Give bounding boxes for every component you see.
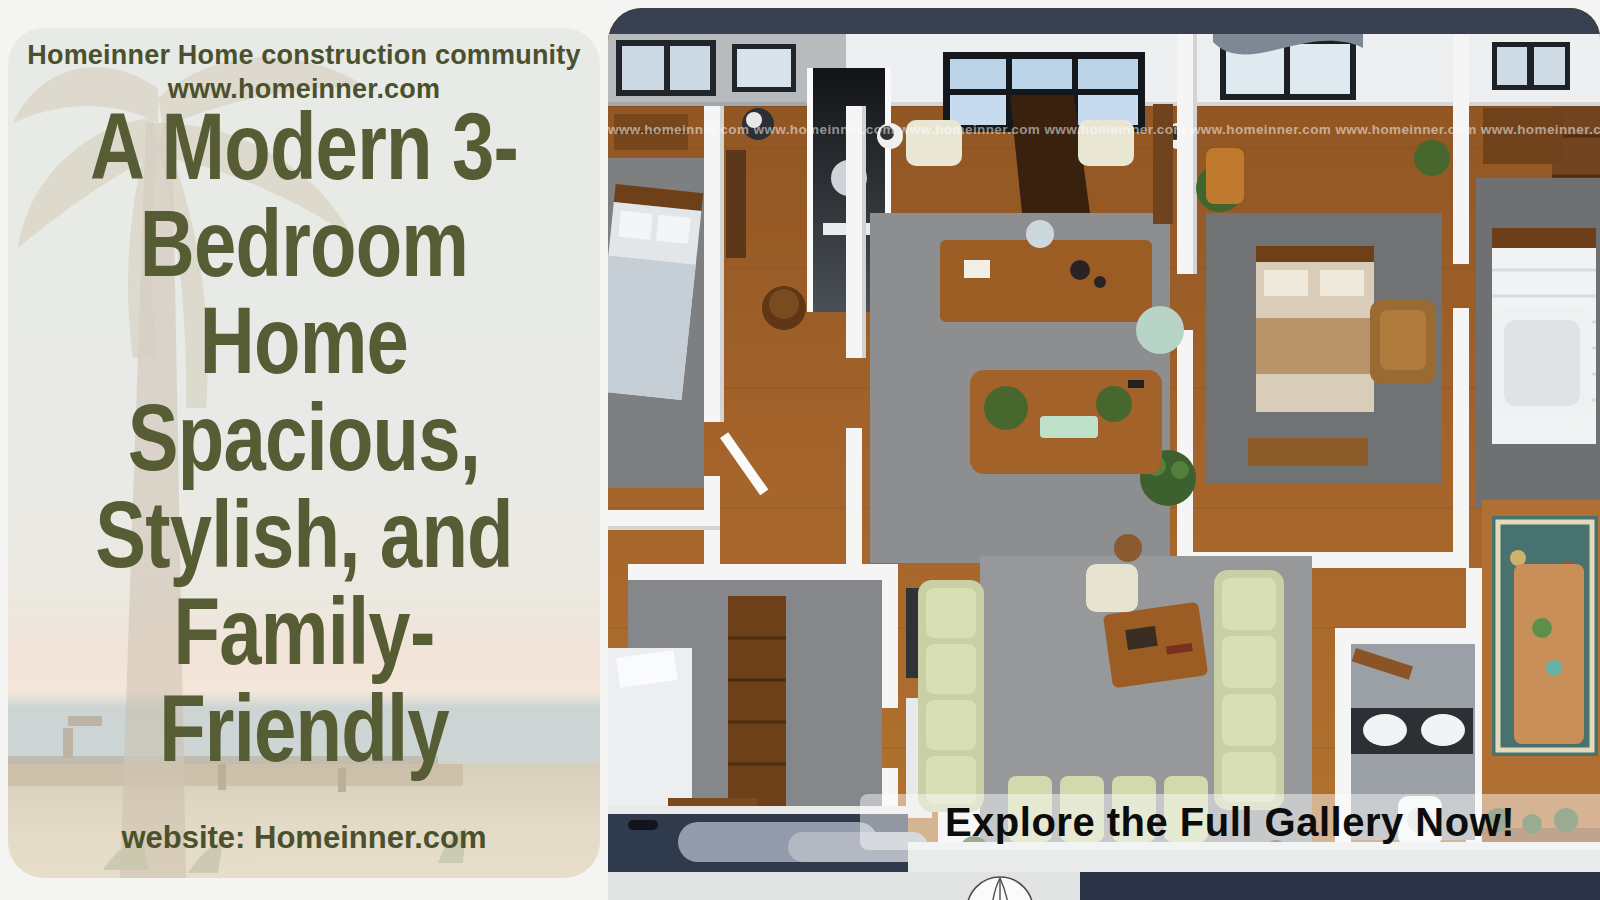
jade-stool	[1136, 306, 1184, 354]
desk	[940, 240, 1152, 322]
sail-logo-icon	[950, 872, 1050, 900]
headline-line-3: Home	[64, 292, 544, 389]
headline-line-2: Bedroom	[64, 195, 544, 292]
patio	[1482, 308, 1600, 868]
sink	[1363, 714, 1407, 746]
left-promo-panel: Homeinner Home construction community ww…	[8, 28, 600, 878]
headline-line-1: A Modern 3-	[64, 98, 544, 195]
bedroom-skylight	[1492, 42, 1570, 90]
page: { "brand": { "header_line1": "Homeinner …	[0, 0, 1600, 900]
cta-banner[interactable]: Explore the Full Gallery Now!	[860, 794, 1600, 850]
headline-line-4: Spacious,	[64, 389, 544, 486]
vase	[1026, 220, 1054, 248]
sofa	[1214, 570, 1284, 810]
bench	[1248, 438, 1368, 466]
plant	[1096, 386, 1132, 422]
plant	[984, 386, 1028, 430]
curtain-window	[1213, 34, 1363, 100]
bookshelf	[728, 596, 786, 826]
sofa	[918, 580, 984, 812]
plant	[1414, 140, 1450, 176]
desk-chair	[1086, 564, 1138, 612]
website-footer: website: Homeinner.com	[8, 820, 600, 856]
headline-line-5: Stylish, and	[64, 486, 544, 583]
chair	[1206, 148, 1244, 204]
vase	[1114, 534, 1142, 562]
cta-text[interactable]: Explore the Full Gallery Now!	[945, 800, 1515, 845]
tray	[1040, 416, 1098, 438]
headline-line-7: Friendly	[64, 680, 544, 777]
top-navy-bar	[608, 8, 1600, 34]
floor-plan-image: www.homeinner.com www.homeinner.com www.…	[608, 8, 1600, 900]
patio-table	[1514, 564, 1584, 744]
console	[726, 150, 746, 258]
brand-header-line1: Homeinner Home construction community	[8, 38, 600, 72]
sink	[1421, 714, 1465, 746]
work-desk	[1103, 602, 1208, 689]
watermark: www.homeinner.com www.homeinner.com www.…	[608, 120, 1600, 140]
headline-line-6: Family-	[64, 583, 544, 680]
floor-plan-render	[608, 8, 1600, 900]
headline: A Modern 3- Bedroom Home Spacious, Styli…	[8, 98, 600, 777]
bedroom-left	[608, 114, 704, 488]
skylight-window	[616, 40, 796, 96]
